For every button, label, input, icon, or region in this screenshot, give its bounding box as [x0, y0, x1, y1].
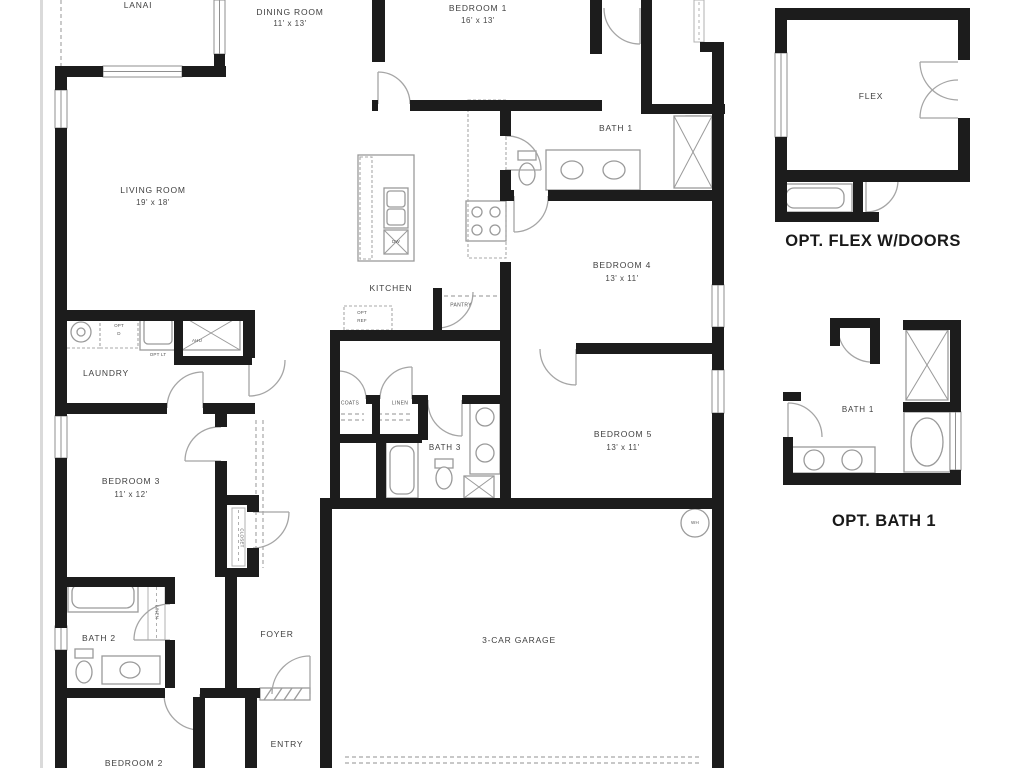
walls-layer: [55, 0, 970, 768]
label-kitchen: KITCHEN: [370, 284, 413, 293]
label-lanai: LANAI: [124, 1, 153, 10]
label-dw: DW: [392, 240, 400, 245]
label-coats: COATS: [341, 402, 359, 407]
dashed-lines-layer: [61, 0, 700, 763]
label-bedroom3-dims: 11' x 12': [114, 491, 147, 499]
optbath-sink-right: [842, 450, 862, 470]
bath3-sink-bottom: [476, 444, 494, 462]
label-bedroom5-dims: 13' x 11': [606, 444, 639, 452]
label-linen-bath2: LINEN: [154, 605, 159, 619]
label-opt-lt: OPT LT: [150, 353, 167, 358]
label-dining-dims: 11' x 13': [273, 20, 306, 28]
label-opt-ref-2: REF: [357, 319, 367, 324]
label-laundry: LAUNDRY: [83, 369, 129, 378]
label-ahu: AHU: [192, 339, 202, 344]
label-closet-bed3: CLOSET: [239, 528, 244, 547]
label-bath3: BATH 3: [429, 444, 461, 452]
label-living: LIVING ROOM: [120, 186, 185, 195]
caption-opt-flex: OPT. FLEX W/DOORS: [785, 233, 960, 250]
label-garage: 3-CAR GARAGE: [482, 636, 556, 645]
label-wh: WH: [691, 521, 699, 526]
label-opt-ref-1: OPT: [357, 311, 367, 316]
label-opt-dryer-2: D: [117, 332, 120, 337]
label-bedroom4: BEDROOM 4: [593, 261, 651, 270]
photo-edge-band: [40, 0, 43, 768]
optbath-sink-left: [804, 450, 824, 470]
label-opt-dryer-1: OPT: [114, 324, 124, 329]
label-bedroom5: BEDROOM 5: [594, 430, 652, 439]
label-living-dims: 19' x 18': [136, 199, 170, 207]
caption-opt-bath: OPT. BATH 1: [832, 513, 936, 530]
bath2-toilet: [75, 649, 93, 658]
label-bedroom1: BEDROOM 1: [449, 4, 507, 13]
floorplan-drawing: [0, 0, 1024, 768]
label-bedroom3: BEDROOM 3: [102, 477, 160, 486]
label-dining: DINING ROOM: [256, 8, 323, 17]
label-foyer: FOYER: [260, 630, 293, 639]
bath1-vanity: [546, 150, 640, 190]
cooktop: [466, 201, 506, 241]
label-optbath-room: BATH 1: [842, 406, 874, 414]
label-flex: FLEX: [859, 92, 883, 101]
bath1-sink-left: [561, 161, 583, 179]
label-bath2: BATH 2: [82, 634, 116, 643]
label-linen-hall: LINEN: [392, 402, 408, 407]
bath1-sink-right: [603, 161, 625, 179]
floor-plan-page: LANAI DINING ROOM 11' x 13' BEDROOM 1 16…: [0, 0, 1024, 768]
label-entry: ENTRY: [271, 740, 304, 749]
label-bedroom4-dims: 13' x 11': [605, 275, 638, 283]
label-bath1: BATH 1: [599, 124, 633, 133]
bath3-sink-top: [476, 408, 494, 426]
door-swings-layer: [134, 8, 958, 730]
bath2-sink: [120, 662, 140, 678]
label-bedroom2: BEDROOM 2: [105, 759, 163, 768]
label-pantry: PANTRY: [450, 304, 472, 309]
bath1-toilet: [518, 151, 536, 160]
label-bedroom1-dims: 16' x 13': [461, 17, 495, 25]
